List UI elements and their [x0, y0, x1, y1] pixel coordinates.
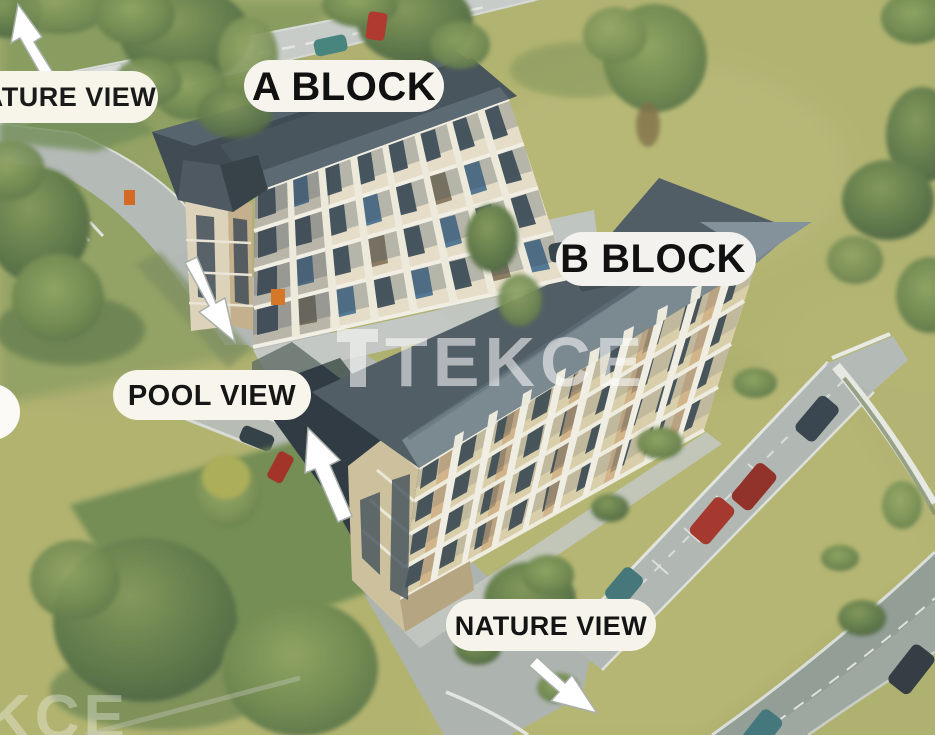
svg-text:NATURE VIEW: NATURE VIEW: [0, 82, 156, 112]
svg-text:B BLOCK: B BLOCK: [560, 237, 746, 281]
svg-text:A BLOCK: A BLOCK: [252, 65, 436, 109]
svg-text:POOL VIEW: POOL VIEW: [128, 380, 296, 412]
svg-text:NATURE VIEW: NATURE VIEW: [455, 611, 648, 641]
svg-text:TEKCE: TEKCE: [385, 323, 647, 401]
